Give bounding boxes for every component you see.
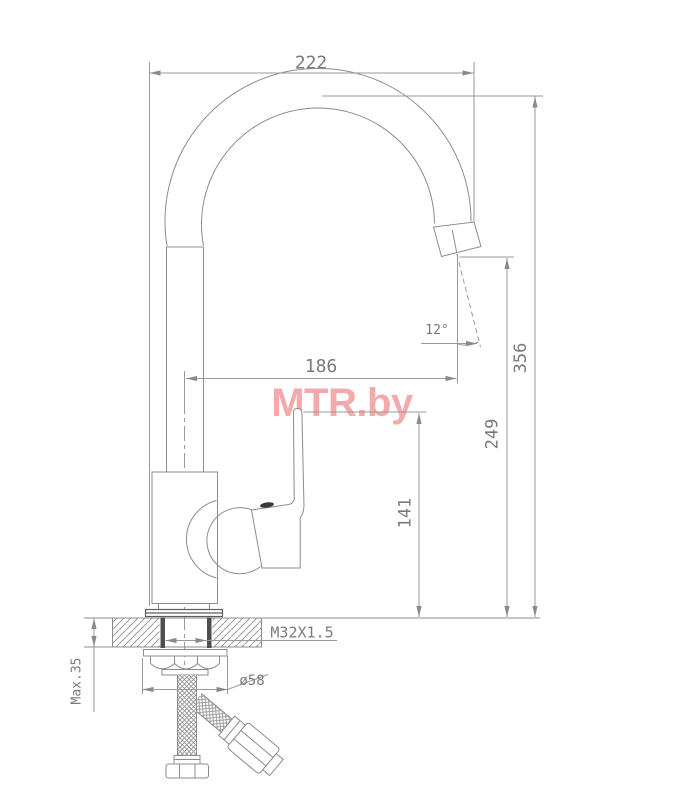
dim-handle-height: 141 bbox=[304, 412, 427, 617]
faucet-body bbox=[146, 472, 223, 617]
dim-label-total-height: 356 bbox=[511, 343, 531, 374]
drawing-canvas: MTR.by bbox=[0, 0, 689, 800]
vertical-hose bbox=[166, 675, 209, 778]
dim-label-outlet-height: 249 bbox=[483, 419, 503, 450]
dim-label-thread: M32X1.5 bbox=[270, 624, 333, 642]
dim-label-flange-diameter: ø58 bbox=[239, 673, 264, 689]
threaded-shank-right bbox=[207, 618, 212, 649]
dim-outlet-height: 249 bbox=[460, 257, 515, 617]
dim-label-handle-height: 141 bbox=[396, 498, 416, 529]
spout-outer-arc bbox=[165, 68, 471, 246]
dim-label-deck-thickness: Max.35 bbox=[70, 658, 85, 705]
watermark-text: MTR.by bbox=[271, 381, 414, 425]
spout-inner-arc bbox=[202, 108, 435, 246]
dim-total-height: 356 bbox=[322, 96, 543, 617]
dim-label-spout-width: 222 bbox=[295, 53, 328, 74]
supply-hoses bbox=[166, 675, 287, 780]
aerator-tip bbox=[434, 222, 482, 257]
threaded-shank-left bbox=[161, 618, 166, 649]
vertical-hose-braid bbox=[178, 675, 197, 756]
faucet-spout bbox=[165, 68, 481, 256]
body-outline bbox=[152, 472, 218, 604]
dim-label-spout-reach: 186 bbox=[305, 356, 338, 377]
shank-collar bbox=[162, 670, 208, 676]
vertical-hose-nut bbox=[166, 764, 209, 778]
dim-deck-thickness: Max.35 bbox=[70, 618, 97, 712]
dim-label-outlet-angle: 12° bbox=[425, 323, 448, 338]
deck-hatch-left bbox=[113, 619, 160, 647]
faucet-technical-drawing: MTR.by bbox=[0, 0, 689, 800]
dim-outlet-angle: 12° bbox=[421, 254, 481, 384]
deck-hatch-right bbox=[213, 619, 262, 647]
mounting-washer bbox=[144, 650, 228, 657]
handle-lever-and-housing bbox=[252, 409, 304, 569]
under-counter-hardware bbox=[144, 650, 228, 676]
